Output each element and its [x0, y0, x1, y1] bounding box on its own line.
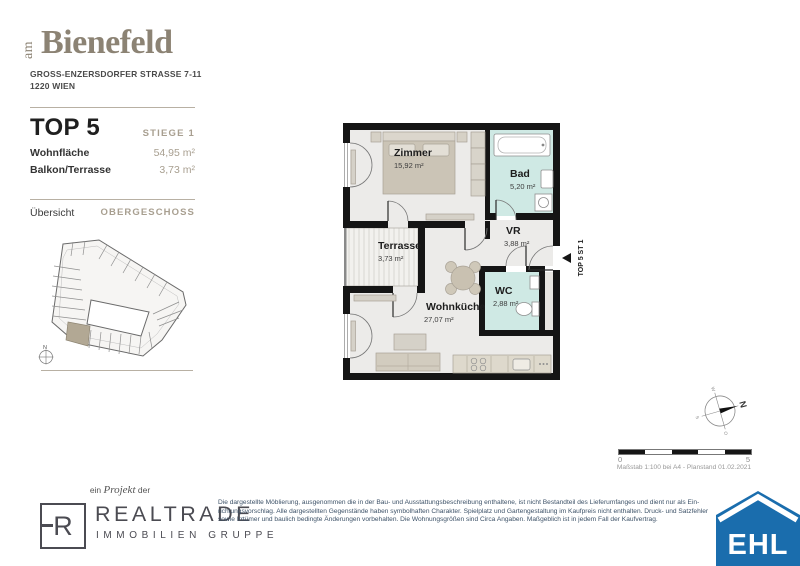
room-area-wc: 2,88 m²	[493, 299, 519, 308]
wardrobe	[471, 132, 485, 196]
room-label-zimmer: Zimmer	[394, 147, 432, 159]
kitchen-counter	[453, 355, 551, 373]
tv-sideboard	[426, 214, 474, 220]
unit-header: TOP 5 STIEGE 1	[30, 114, 195, 142]
room-label-wc: WC	[495, 285, 513, 297]
realtrade-subtitle: IMMOBILIEN GRUPPE	[96, 530, 278, 541]
dining-table	[451, 266, 475, 290]
disclaimer-line-1: Die dargestellte Möblierung, ausgenommen…	[218, 499, 800, 508]
scale-start: 0	[618, 455, 622, 464]
toilet-cistern	[532, 302, 539, 316]
compass-icon: N O S W	[692, 383, 748, 439]
sink	[541, 170, 553, 188]
wc-sink	[530, 276, 539, 289]
compass-s: S	[695, 415, 701, 419]
headboard	[383, 132, 455, 141]
metric-wohnflaeche: Wohnfläche 54,95 m²	[30, 147, 195, 159]
room-area-bad: 5,20 m²	[510, 182, 536, 191]
room-area-vr: 3,88 m²	[504, 239, 530, 248]
entrance-label: TOP 5 ST 1	[578, 240, 585, 277]
ehl-logo: EHL	[716, 486, 800, 566]
scale-bar-numbers: 0 5	[618, 455, 750, 464]
project-word: Projekt	[104, 484, 136, 496]
metric-balkon: Balkon/Terrasse 3,73 m²	[30, 164, 195, 176]
stiege-label: STIEGE 1	[143, 128, 195, 142]
project-of-line: ein Projekt der	[30, 484, 210, 496]
compass-o: O	[723, 431, 729, 436]
realtrade-logo-icon: R	[40, 503, 86, 549]
disclaimer-text: Die dargestellte Möblierung, ausgenommen…	[218, 499, 800, 525]
address-line-1: GROSS-ENZERSDORFER STRASSE 7-11	[30, 68, 202, 80]
radiator	[351, 150, 356, 184]
overview-header: Übersicht OBERGESCHOSS	[30, 207, 195, 219]
ehl-text: EHL	[728, 529, 789, 561]
realtrade-letter: R	[53, 513, 73, 540]
project-pre: ein	[90, 485, 101, 495]
project-post: der	[138, 485, 150, 495]
disclaimer-line-3: sowie Irrtümer und baulich bedingte Ände…	[218, 516, 800, 525]
metric-value: 3,73 m²	[159, 164, 195, 176]
scale-caption: Maßstab 1:100 bei A4 - Planstand 01.02.2…	[599, 464, 769, 471]
project-logo-prefix: am	[21, 41, 37, 59]
dresser	[394, 334, 426, 350]
realtrade-logo-bar	[40, 524, 53, 527]
radiator	[351, 321, 356, 351]
scale-end: 5	[746, 455, 750, 464]
overview-compass-icon: N	[39, 345, 54, 365]
nightstand	[371, 132, 381, 142]
entrance-marker: TOP 5 ST 1	[562, 240, 585, 277]
room-label-terrasse: Terrasse	[378, 240, 421, 252]
overview-highlighted-unit	[66, 322, 90, 346]
room-label-vr: VR	[506, 225, 521, 237]
nightstand	[457, 132, 467, 142]
overview-compass-n: N	[43, 345, 47, 351]
room-area-wohnkueche: 27,07 m²	[424, 315, 454, 324]
compass-w: W	[710, 386, 716, 392]
overview-label: Übersicht	[30, 207, 74, 219]
room-area-zimmer: 15,92 m²	[394, 161, 424, 170]
project-logo: Bienefeld	[41, 24, 172, 62]
entrance-arrow-icon	[562, 253, 571, 263]
kitchen-sink-icon	[513, 359, 530, 370]
unit-title: TOP 5	[30, 114, 100, 142]
divider	[30, 199, 195, 200]
floor-plan: Zimmer 15,92 m² Bad 5,20 m² VR 3,88 m² W…	[338, 118, 590, 384]
metric-label: Wohnfläche	[30, 147, 89, 159]
compass-n: N	[737, 400, 748, 409]
project-address: GROSS-ENZERSDORFER STRASSE 7-11 1220 WIE…	[30, 68, 202, 92]
room-label-bad: Bad	[510, 168, 530, 180]
room-label-wohnkueche: Wohnküche	[426, 301, 485, 313]
overview-plan: N	[33, 236, 193, 368]
washing-machine	[535, 194, 552, 211]
divider	[30, 107, 195, 108]
address-line-2: 1220 WIEN	[30, 80, 202, 92]
divider	[41, 370, 193, 371]
room-area-terrasse: 3,73 m²	[378, 254, 404, 263]
metric-label: Balkon/Terrasse	[30, 164, 111, 176]
drawer-dots	[539, 363, 548, 365]
metric-value: 54,95 m²	[154, 147, 195, 159]
sideboard	[354, 295, 396, 301]
level-label: OBERGESCHOSS	[101, 207, 196, 219]
